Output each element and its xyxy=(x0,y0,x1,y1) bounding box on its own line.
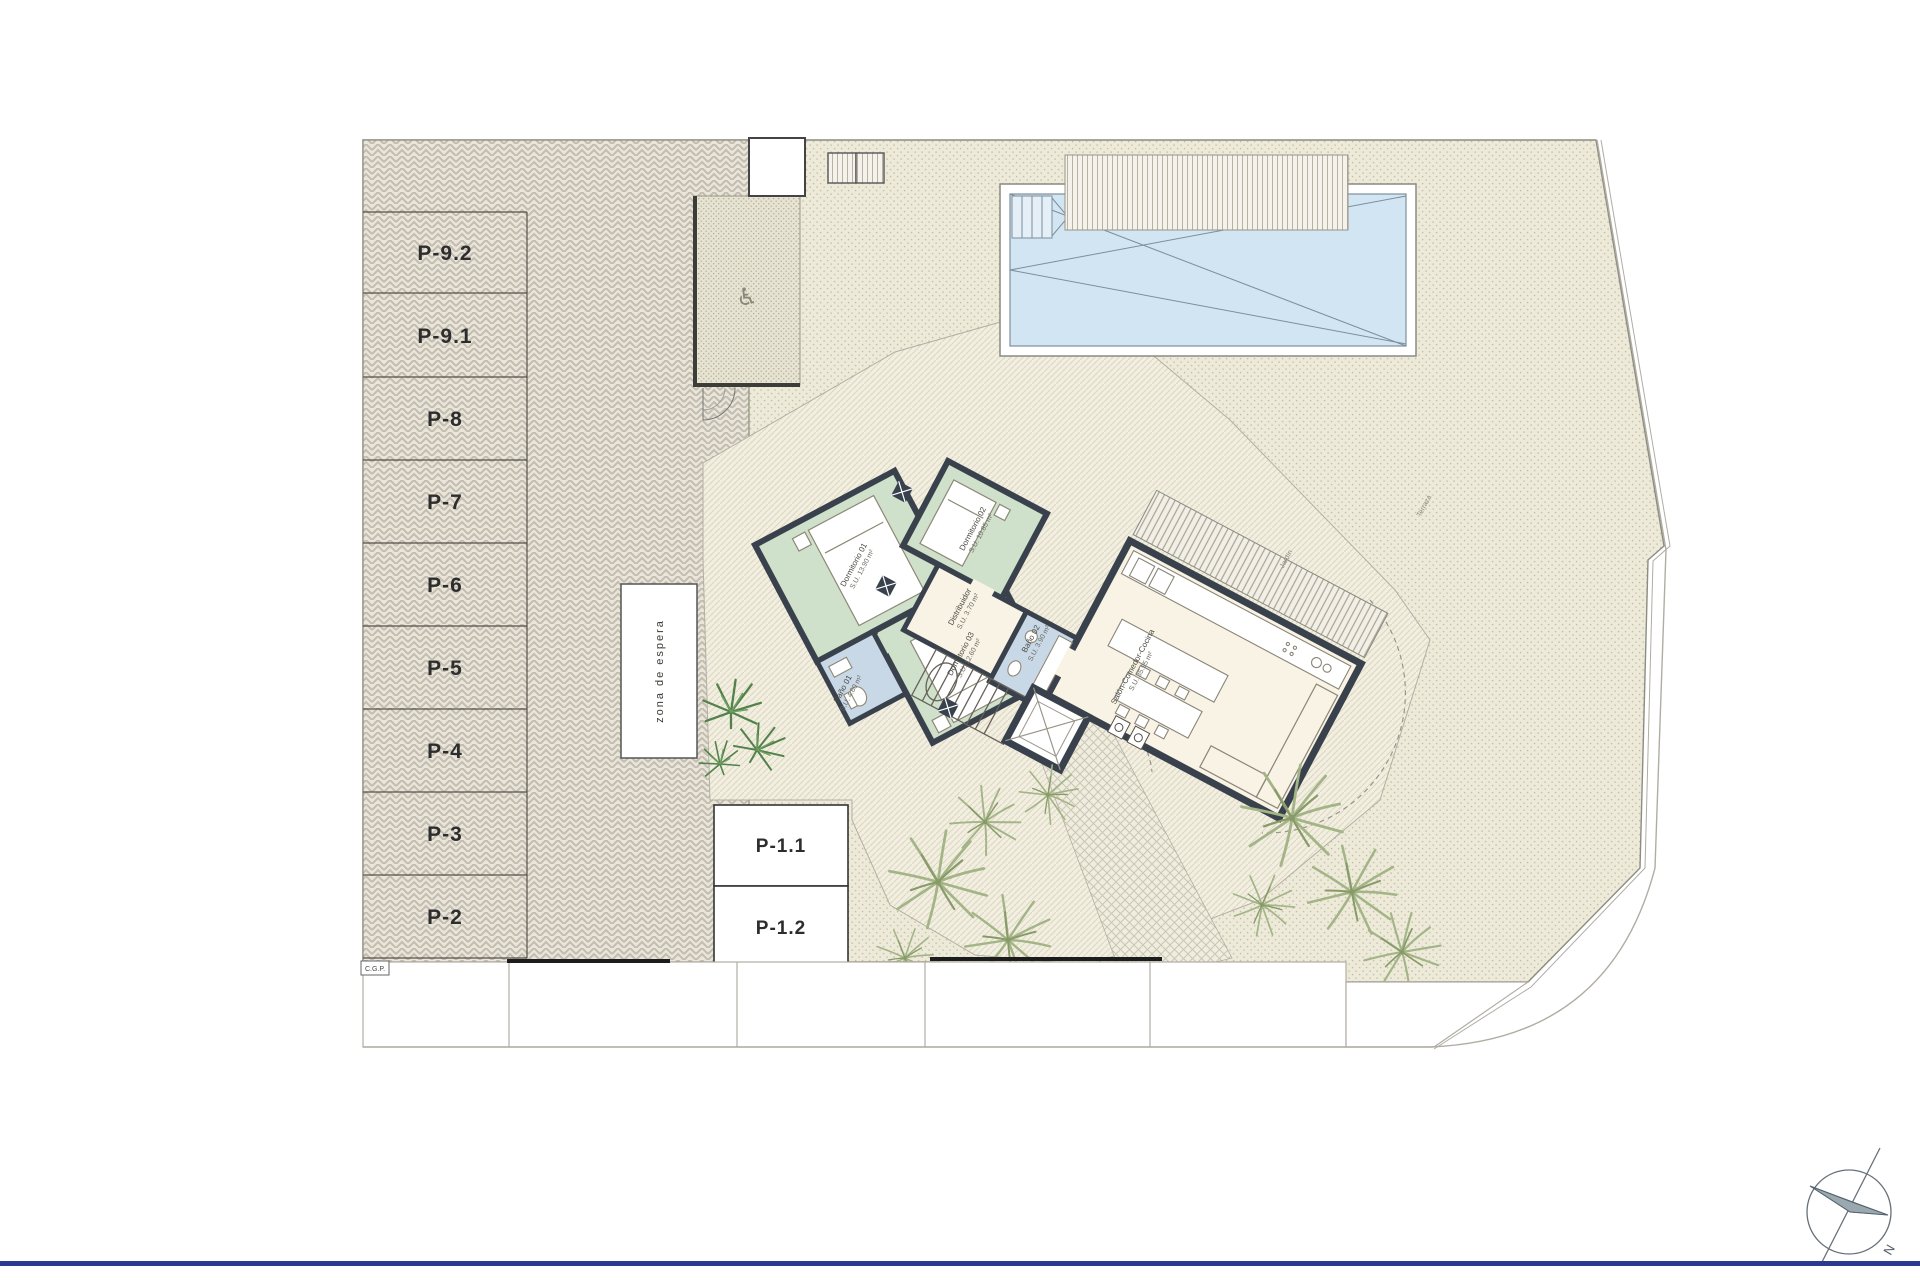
site-plan-drawing: P-9.2 P-9.1 P-8 P-7 P-6 P-5 P-4 P-3 P-2 … xyxy=(0,0,1920,1280)
ramp-structure: ♿ xyxy=(695,196,800,420)
stall-label-p7: P-7 xyxy=(427,491,463,514)
compass-rose: N xyxy=(1807,1148,1898,1262)
front-parking-stalls: P-1.1 P-1.2 xyxy=(714,805,848,967)
waiting-zone-label: zona de espera xyxy=(654,619,666,723)
top-structure xyxy=(749,138,805,196)
stall-label-p4: P-4 xyxy=(427,740,463,763)
stall-label-p92: P-9.2 xyxy=(417,242,472,265)
cgp-label: C.G.P. xyxy=(365,966,385,973)
floor-plan-page: P-9.2 P-9.1 P-8 P-7 P-6 P-5 P-4 P-3 P-2 … xyxy=(0,0,1920,1280)
cgp-box: C.G.P. xyxy=(361,961,389,975)
boundary-wall-2 xyxy=(930,957,1162,961)
stall-label-p2: P-2 xyxy=(427,906,463,929)
bottom-rule xyxy=(0,1261,1920,1266)
stall-label-p12: P-1.2 xyxy=(756,918,806,939)
stall-label-p3: P-3 xyxy=(427,823,463,846)
waiting-zone: zona de espera xyxy=(621,584,697,758)
stall-label-p91: P-9.1 xyxy=(417,325,472,348)
stall-label-p6: P-6 xyxy=(427,574,463,597)
boundary-wall-1 xyxy=(507,959,670,963)
stall-label-p5: P-5 xyxy=(427,657,463,680)
garden-gate xyxy=(828,153,884,183)
pool-deck xyxy=(1065,155,1348,230)
stall-label-p11: P-1.1 xyxy=(756,836,806,857)
stall-label-p8: P-8 xyxy=(427,408,463,431)
north-label: N xyxy=(1880,1242,1898,1258)
accessible-icon: ♿ xyxy=(736,284,758,311)
